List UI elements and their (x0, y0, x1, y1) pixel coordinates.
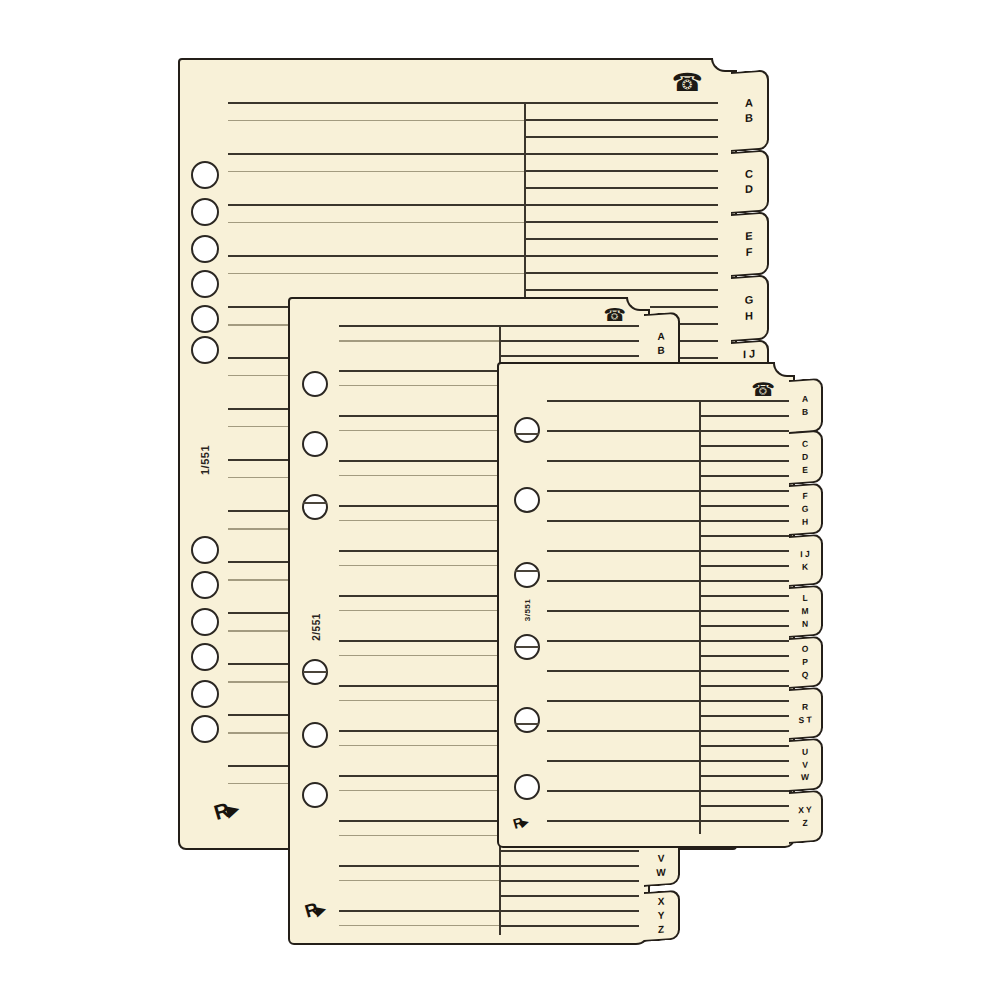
binder-hole (302, 659, 328, 685)
binder-hole (191, 235, 219, 263)
brand-logo: R ▶ (511, 812, 530, 832)
binder-hole (191, 536, 219, 564)
tab-lmn: L M N (789, 585, 823, 638)
binder-hole (191, 305, 219, 333)
product-photo-stage: ☎ 1/551 R ▶ A B C D E F G H I J ☎ (0, 0, 1000, 1000)
binder-hole (514, 634, 540, 660)
binder-hole (191, 198, 219, 226)
tab-xyz: X Y Z (644, 889, 680, 942)
binder-hole (302, 371, 328, 397)
telephone-icon: ☎ (604, 306, 626, 324)
binder-hole (302, 722, 328, 748)
binder-hole (302, 782, 328, 808)
tab-ijk: I J K (789, 534, 823, 587)
tab-gh: G H (731, 274, 769, 342)
corner-notch-cut (711, 58, 737, 72)
binder-hole (514, 774, 540, 800)
tab-cd: C D (731, 149, 769, 214)
tab-opq: O P Q (789, 636, 823, 689)
ruled-lines-name-column (547, 400, 699, 834)
binder-hole (191, 270, 219, 298)
page-marker: 1/551 (183, 438, 227, 482)
binder-hole (514, 707, 540, 733)
telephone-icon: ☎ (672, 70, 703, 95)
brand-logo: R ▶ (211, 795, 242, 825)
telephone-icon: ☎ (751, 380, 775, 399)
binder-hole (191, 608, 219, 636)
tab-ab: A B (731, 69, 769, 152)
ruled-lines-name-column (339, 325, 499, 935)
corner-notch-cut (626, 297, 650, 311)
binder-hole (191, 643, 219, 671)
tab-uvw: U V W (789, 738, 823, 792)
page-marker: 2/551 (294, 605, 338, 649)
binder-hole (191, 161, 219, 189)
tab-ab: A B (789, 378, 823, 434)
brand-logo: R ▶ (303, 897, 329, 923)
binder-hole (191, 571, 219, 599)
index-sheet-small: ☎ 3/551 R ▶ A B C D E F G H I J K L M N … (497, 362, 795, 848)
tab-cde: C D E (789, 430, 823, 485)
tab-fgh: F G H (789, 483, 823, 536)
binder-hole (514, 562, 540, 588)
binder-hole (191, 680, 219, 708)
tab-xyz: X Y Z (789, 790, 823, 844)
tab-ef: E F (731, 211, 769, 277)
corner-notch-cut (773, 362, 795, 377)
binder-hole (302, 431, 328, 457)
column-divider-line (699, 400, 701, 834)
ruled-lines-phone-column (701, 400, 792, 834)
tab-rst: R S T (789, 687, 823, 740)
binder-hole (191, 715, 219, 743)
binder-hole (514, 417, 540, 443)
page-marker: 3/551 (505, 588, 549, 632)
binder-hole (191, 336, 219, 364)
binder-hole (302, 494, 328, 520)
binder-hole (514, 487, 540, 513)
